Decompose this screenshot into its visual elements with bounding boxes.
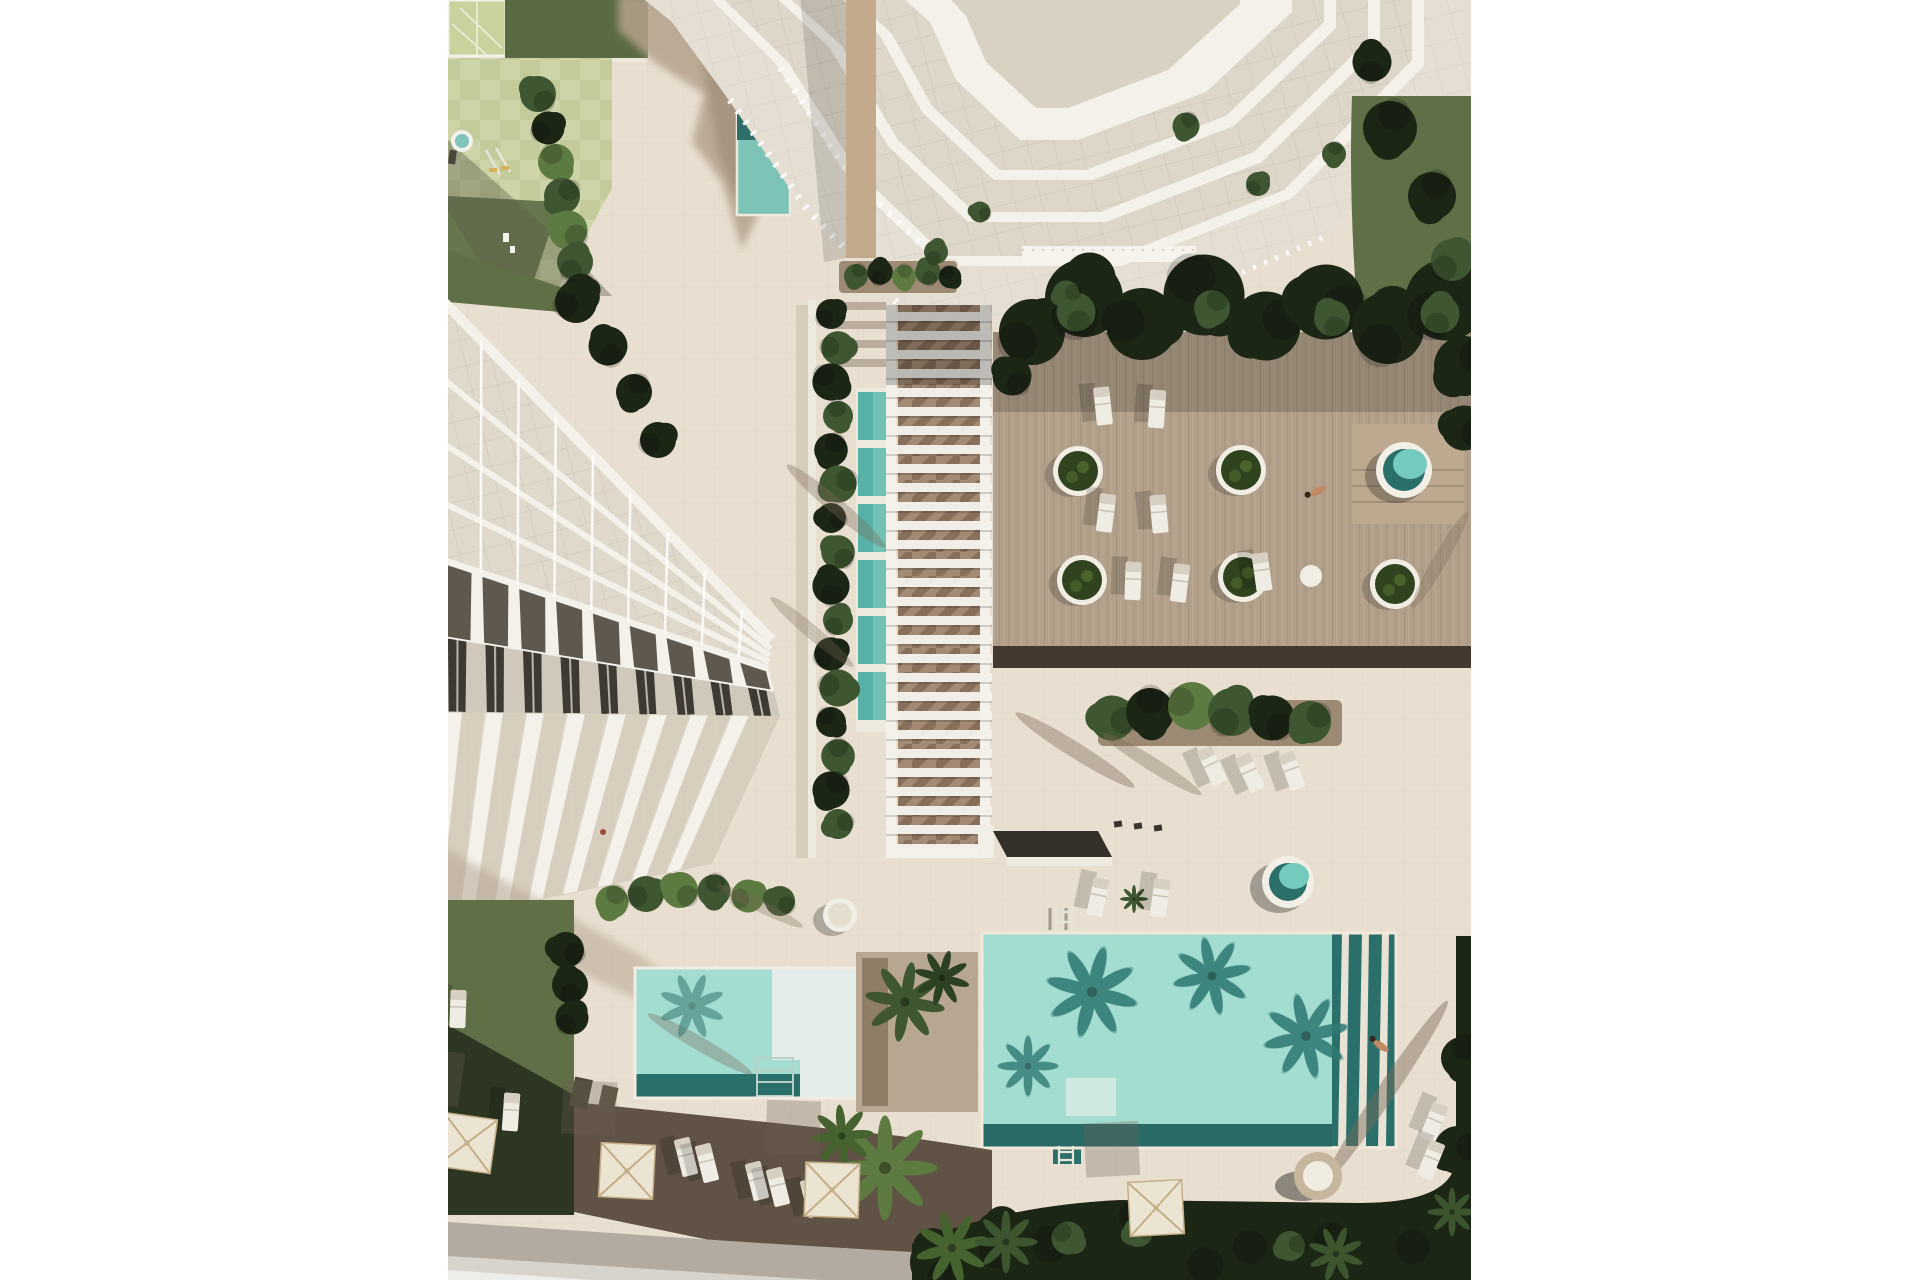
underwater-bench (1066, 1078, 1116, 1116)
render-content (396, 0, 1500, 1280)
deck-table (1300, 565, 1322, 587)
pergola-slats (886, 312, 992, 855)
render-viewport: Aerial top-down 3D architectural renderi… (0, 0, 1920, 1280)
aerial-render (0, 0, 1920, 1280)
terrace-railing (1022, 246, 1196, 262)
tan-core-wall (846, 0, 876, 258)
segmented-lap-pool (856, 388, 890, 732)
kids-pool (635, 968, 860, 1098)
pool-divider-planter (856, 952, 978, 1112)
